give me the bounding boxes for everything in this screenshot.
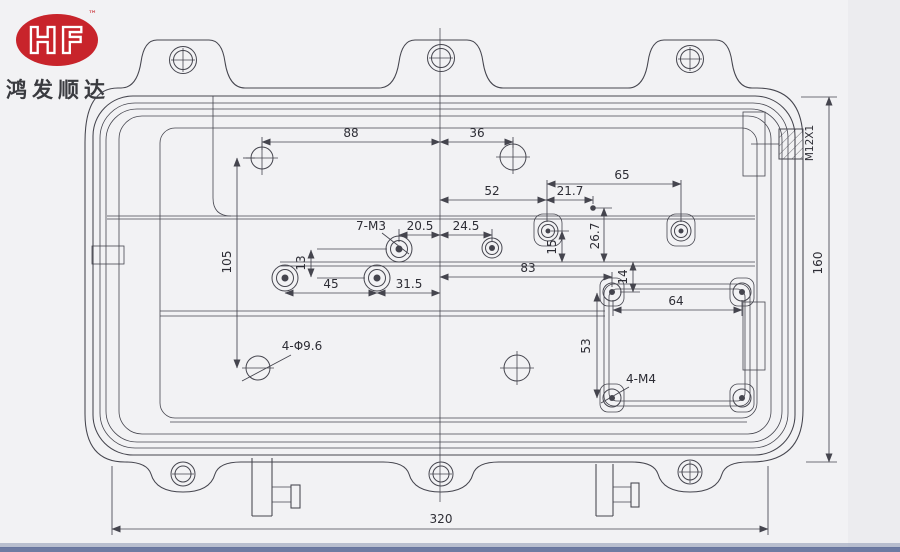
- label-m12x1: M12X1: [804, 125, 816, 161]
- svg-text:4-Φ9.6: 4-Φ9.6: [282, 339, 323, 353]
- svg-text:88: 88: [343, 126, 358, 140]
- svg-text:21.7: 21.7: [557, 184, 584, 198]
- paper-edge-shadow: [848, 0, 900, 552]
- svg-text:31.5: 31.5: [396, 277, 423, 291]
- logo-text: HF: [28, 21, 87, 62]
- pocket-screw-bottom-center: [429, 462, 453, 486]
- lobe-screw-top-left: [170, 47, 197, 74]
- svg-text:36: 36: [469, 126, 484, 140]
- pocket-screw-bottom-right: [678, 460, 702, 484]
- drawing-sheet: HF ™ 鸿发顺达: [0, 0, 900, 552]
- svg-text:24.5: 24.5: [453, 219, 480, 233]
- svg-text:26.7: 26.7: [588, 223, 602, 250]
- svg-text:52: 52: [484, 184, 499, 198]
- technical-drawing-canvas: HF ™ 鸿发顺达: [0, 0, 900, 552]
- svg-text:15: 15: [545, 239, 559, 254]
- svg-text:20.5: 20.5: [407, 219, 434, 233]
- svg-text:320: 320: [430, 512, 453, 526]
- svg-text:7-M3: 7-M3: [356, 219, 386, 233]
- svg-text:83: 83: [520, 261, 535, 275]
- logo-trademark: ™: [88, 10, 97, 20]
- lobe-screw-top-right: [677, 46, 704, 73]
- svg-text:13: 13: [294, 255, 308, 270]
- lobe-screw-top-center: [428, 45, 455, 72]
- svg-text:45: 45: [323, 277, 338, 291]
- svg-text:160: 160: [811, 252, 825, 275]
- svg-text:4-M4: 4-M4: [626, 372, 656, 386]
- svg-text:105: 105: [220, 251, 234, 274]
- scan-edge-dark: [0, 547, 900, 552]
- pocket-screw-bottom-left: [171, 462, 195, 486]
- svg-text:M12X1: M12X1: [804, 125, 816, 161]
- svg-text:64: 64: [668, 294, 683, 308]
- paper-background: [0, 0, 900, 552]
- svg-text:14: 14: [616, 269, 630, 284]
- svg-text:65: 65: [614, 168, 629, 182]
- svg-text:53: 53: [579, 338, 593, 353]
- company-name: 鸿发顺达: [6, 78, 110, 102]
- m12-thread-section: [779, 129, 803, 159]
